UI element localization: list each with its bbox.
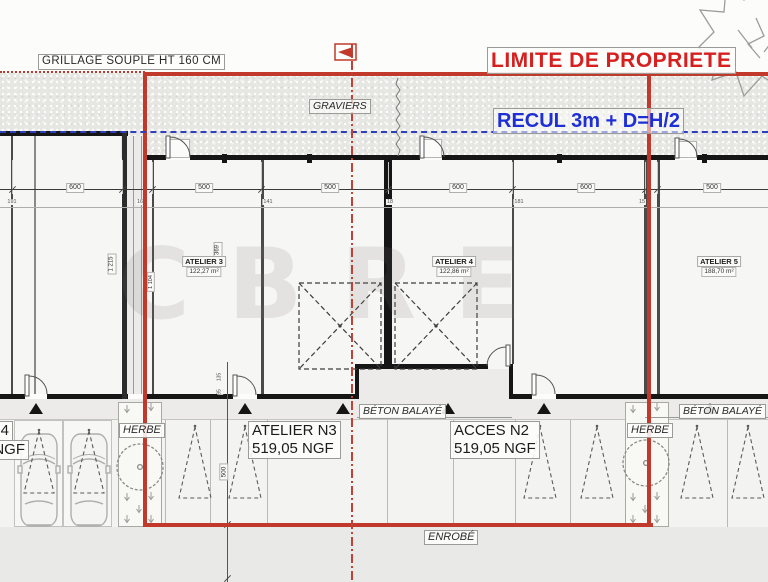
acces-n2-level: 519,05 NGF <box>454 440 536 458</box>
dim-label: 500 <box>321 183 339 193</box>
property-limit-label: LIMITE DE PROPRIETE <box>487 47 736 74</box>
atelier-n3-title: ATELIER N3 <box>252 422 337 440</box>
dim-label-vertical: 135 <box>217 373 223 381</box>
site-plan: 600 500 500 600 600 500 191 16 141 18 18… <box>0 0 768 582</box>
room-label: ATELIER 4 <box>432 256 476 267</box>
room-label: ATELIER 5 <box>697 256 741 267</box>
section-centerline <box>351 44 353 582</box>
dim-label-vertical: 500 <box>219 464 228 481</box>
enrobe-label: ENROBÉ <box>424 530 478 545</box>
atelier-n3-level: 519,05 NGF <box>252 440 337 458</box>
left-edge-label-fragment: N4 <box>0 421 13 441</box>
setback-label: RECUL 3m + D=H/2 <box>493 108 684 134</box>
dim-label: 600 <box>66 183 84 193</box>
property-boundary-left <box>143 72 147 527</box>
expansion-joint <box>396 78 400 156</box>
left-edge-label-fragment: NGF <box>0 440 29 460</box>
acces-n2-label: ACCES N2 519,05 NGF <box>450 421 540 459</box>
gravel-label: GRAVIERS <box>309 99 371 114</box>
dimension-line <box>0 207 768 208</box>
fence-label: GRILLAGE SOUPLE HT 160 CM <box>38 54 225 70</box>
dim-label: 500 <box>703 183 721 193</box>
beton-balaye-label: BÉTON BALAYÉ <box>679 404 766 419</box>
dim-label: 600 <box>449 183 467 193</box>
dim-label-minor: 181 <box>513 199 524 205</box>
property-boundary-right <box>647 72 651 527</box>
grass-symbol <box>125 403 660 523</box>
dim-label-minor: 141 <box>262 199 273 205</box>
herbe-label: HERBE <box>627 423 673 438</box>
room-area-label: 122,27 m² <box>186 267 221 277</box>
atelier-n3-label: ATELIER N3 519,05 NGF <box>248 421 341 459</box>
acces-n2-title: ACCES N2 <box>454 422 536 440</box>
dim-label-minor: 191 <box>6 199 17 205</box>
dim-label-vertical: 1 215 <box>108 253 117 274</box>
dim-label-vertical: 95 <box>217 389 223 395</box>
herbe-label: HERBE <box>119 423 165 438</box>
fence-line <box>0 71 145 73</box>
section-flag-icon <box>335 44 356 60</box>
property-boundary-bottom <box>143 523 653 527</box>
dim-label-minor: 18 <box>386 199 394 205</box>
room-area-label: 188,70 m² <box>701 267 736 277</box>
beton-balaye-label: BÉTON BALAYÉ <box>359 404 446 419</box>
room-label: ATELIER 3 <box>182 256 226 267</box>
watermark: CBRE <box>118 228 559 342</box>
dim-label-minor: 15 <box>638 199 646 205</box>
dimension-line <box>0 189 768 190</box>
dim-label: 600 <box>577 183 595 193</box>
car <box>68 434 110 526</box>
room-area-label: 122,86 m² <box>436 267 471 277</box>
dim-label: 500 <box>195 183 213 193</box>
